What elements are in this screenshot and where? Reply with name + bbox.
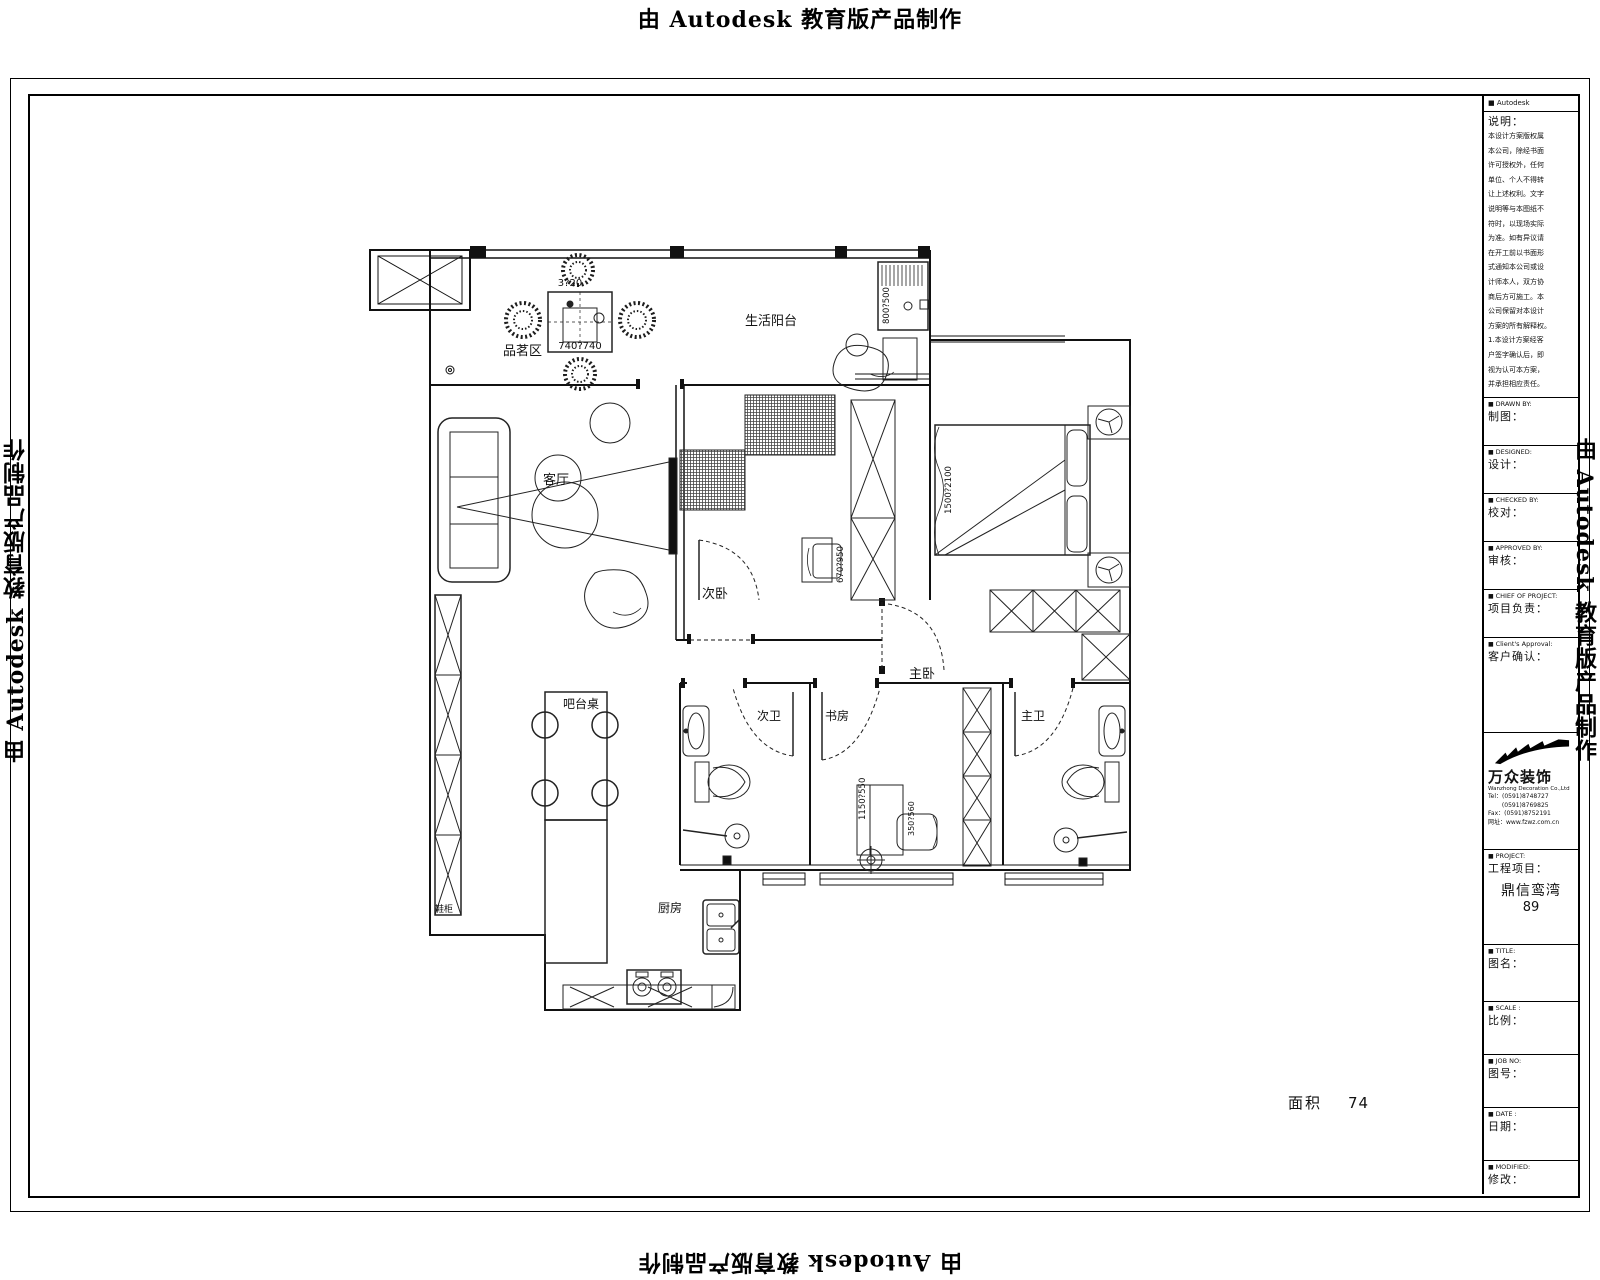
wall-columns <box>470 246 1075 688</box>
field-designed: DESIGNED: 设计： <box>1484 446 1578 494</box>
field-chief-en: CHIEF OF PROJECT: <box>1488 592 1574 601</box>
field-chief-zh: 项目负责： <box>1488 601 1574 616</box>
field-checked: CHECKED BY: 校对： <box>1484 494 1578 542</box>
field-date-en: DATE : <box>1488 1110 1574 1119</box>
label-tea-area: 品茗区 <box>503 344 542 359</box>
titleblock-header: Autodesk <box>1484 94 1578 112</box>
field-approved-en: APPROVED BY: <box>1488 544 1574 553</box>
label-balcony: 生活阳台 <box>745 314 797 329</box>
field-drawn-by-zh: 制图： <box>1488 409 1574 424</box>
dim-study-desk: 1150?550 <box>858 778 868 820</box>
field-scale-en: SCALE : <box>1488 1004 1574 1013</box>
dim-tea-table: 740?740 <box>558 341 601 352</box>
watermark-top: 由 Autodesk 教育版产品制作 <box>638 2 962 34</box>
dim-bedroom-chair: 670?950 <box>836 546 846 583</box>
floor-plan: 品茗区 生活阳台 740?740 3?20 800?500 客厅 <box>365 228 1155 1018</box>
company-subtitle: Wanzhong Decoration Co.,Ltd <box>1488 786 1574 793</box>
company-tel2: (0591)8769825 <box>1488 802 1574 811</box>
field-client-approval-zh: 客户确认： <box>1488 649 1574 664</box>
project-en: PROJECT: <box>1488 852 1574 861</box>
project-section: PROJECT: 工程项目： 鼎信鸾湾 89 <box>1484 850 1578 945</box>
field-checked-en: CHECKED BY: <box>1488 496 1574 505</box>
field-designed-zh: 设计： <box>1488 457 1574 472</box>
field-jobno-zh: 图号： <box>1488 1066 1574 1081</box>
field-modified-zh: 修改： <box>1488 1172 1574 1187</box>
living-room-furniture <box>438 403 677 628</box>
title-block: Autodesk 说明： 本设计方案版权属 本公司，除经书面 许可授权外，任何 … <box>1482 94 1578 1194</box>
dim-washer: 800?500 <box>882 287 892 324</box>
label-second-bedroom: 次卧 <box>702 586 728 602</box>
field-chief: CHIEF OF PROJECT: 项目负责： <box>1484 590 1578 638</box>
second-bedroom-furniture <box>680 395 895 600</box>
field-client-approval-en: Client's Approval: <box>1488 640 1574 649</box>
field-date-zh: 日期： <box>1488 1119 1574 1134</box>
titleblock-header-text: Autodesk <box>1488 97 1574 109</box>
label-second-bath: 次卫 <box>757 709 781 723</box>
company-fax: Fax：(0591)8752191 <box>1488 810 1574 819</box>
project-zh: 工程项目： <box>1488 861 1574 876</box>
area-value: 74 <box>1348 1094 1369 1112</box>
field-modified: MODIFIED: 修改： <box>1484 1161 1578 1194</box>
field-title: TITLE: 图名： <box>1484 945 1578 1002</box>
field-scale-zh: 比例： <box>1488 1013 1574 1028</box>
field-designed-en: DESIGNED: <box>1488 448 1574 457</box>
company-section: 万众装饰 Wanzhong Decoration Co.,Ltd Tel：(05… <box>1484 733 1578 850</box>
company-name: 万众装饰 <box>1488 769 1574 786</box>
field-jobno-en: JOB NO: <box>1488 1057 1574 1066</box>
watermark-bottom: 由 Autodesk 教育版产品制作 <box>638 1248 962 1280</box>
field-drawn-by: DRAWN BY: 制图： <box>1484 398 1578 446</box>
balcony-furniture <box>506 255 929 391</box>
project-name: 鼎信鸾湾 <box>1488 880 1574 900</box>
notes-label: 说明： <box>1488 114 1574 129</box>
field-title-en: TITLE: <box>1488 947 1574 956</box>
label-master-bedroom: 主卧 <box>909 667 935 682</box>
master-bedroom-furniture <box>882 406 1130 680</box>
label-living: 客厅 <box>543 472 569 488</box>
dim-bed: 1500?2100 <box>944 466 954 514</box>
label-kitchen: 厨房 <box>658 900 682 915</box>
dim-study-chair: 350?560 <box>907 801 916 836</box>
field-client-approval: Client's Approval: 客户确认： <box>1484 638 1578 733</box>
field-title-zh: 图名： <box>1488 956 1574 971</box>
floor-drain-symbol <box>446 366 454 374</box>
company-logo-swoosh <box>1488 735 1576 765</box>
field-approved: APPROVED BY: 审核： <box>1484 542 1578 590</box>
kitchen-furniture <box>435 595 739 1009</box>
project-number: 89 <box>1488 900 1574 915</box>
label-shoe-cabinet: 鞋柜 <box>435 903 453 915</box>
label-master-bath: 主卫 <box>1021 709 1045 723</box>
field-jobno: JOB NO: 图号： <box>1484 1055 1578 1108</box>
area-note: 面积74 <box>1288 1092 1369 1113</box>
dim-tea-table-top: 3?20 <box>558 278 582 289</box>
field-modified-en: MODIFIED: <box>1488 1163 1574 1172</box>
floor-drain-symbol-inner <box>449 369 452 372</box>
label-bar-table: 吧台桌 <box>563 696 599 711</box>
field-approved-zh: 审核： <box>1488 553 1574 568</box>
field-date: DATE : 日期： <box>1484 1108 1578 1161</box>
cad-sheet: 由 Autodesk 教育版产品制作 由 Autodesk 教育版产品制作 由 … <box>0 0 1600 1280</box>
company-tel1: Tel：(0591)8748727 <box>1488 793 1574 802</box>
field-checked-zh: 校对： <box>1488 505 1574 520</box>
label-study: 书房 <box>825 708 849 723</box>
notes-section: 说明： 本设计方案版权属 本公司，除经书面 许可授权外，任何 单位、个人不得转 … <box>1484 112 1578 398</box>
company-web: 网址：www.fzwz.com.cn <box>1488 819 1574 828</box>
notes-text: 本设计方案版权属 本公司，除经书面 许可授权外，任何 单位、个人不得转 让上述权… <box>1488 129 1574 392</box>
walls <box>370 250 1130 1010</box>
field-scale: SCALE : 比例： <box>1484 1002 1578 1055</box>
field-drawn-by-en: DRAWN BY: <box>1488 400 1574 409</box>
area-label: 面积 <box>1288 1094 1322 1112</box>
